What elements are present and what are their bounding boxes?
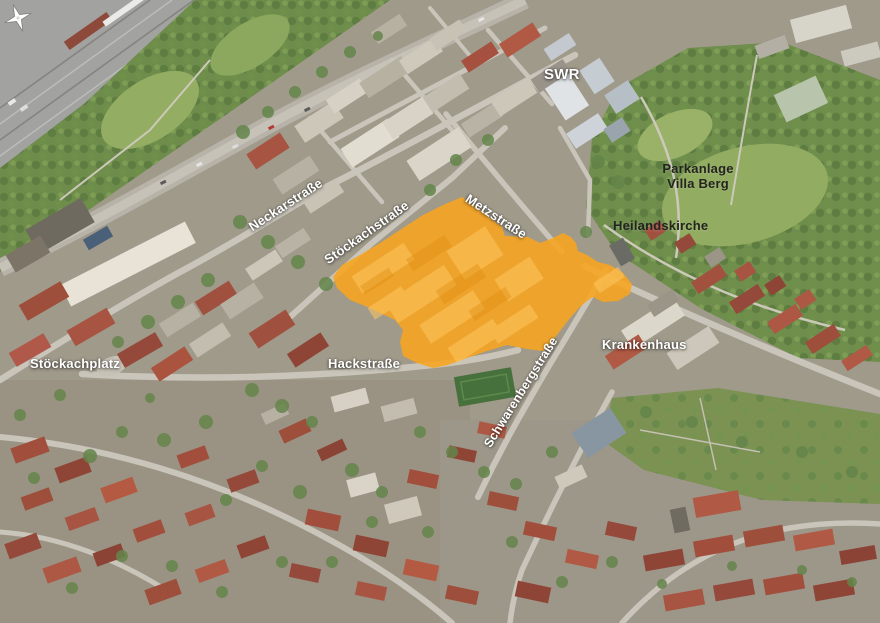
aerial-photo: [0, 0, 880, 623]
compass-rose-icon: [0, 0, 36, 36]
aerial-map-view: SWR Parkanlage Villa Berg Heilandskirche…: [0, 0, 880, 623]
